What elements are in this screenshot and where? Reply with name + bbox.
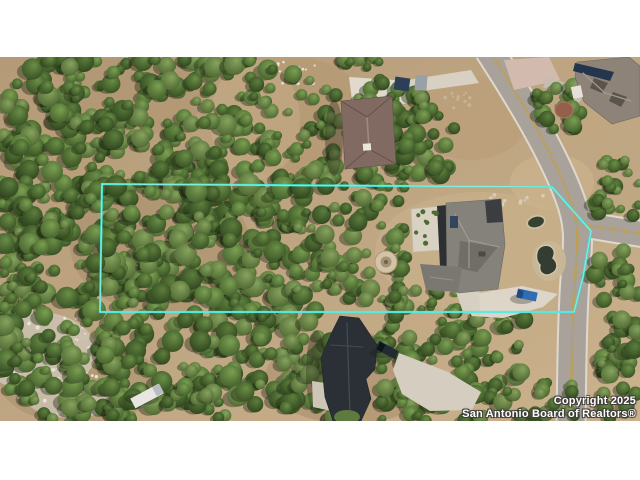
- house-main: [411, 199, 505, 293]
- aerial-photo-svg: [0, 57, 640, 421]
- aerial-photo: Copyright 2025 San Antonio Board of Real…: [0, 57, 640, 421]
- listing-photo-page: Copyright 2025 San Antonio Board of Real…: [0, 0, 640, 480]
- watermark: Copyright 2025 San Antonio Board of Real…: [462, 395, 636, 420]
- house-top: [325, 96, 396, 176]
- watermark-board-of-realtors: San Antonio Board of Realtors®: [462, 408, 636, 421]
- forest-region: [0, 177, 106, 325]
- house-bottom: [306, 316, 377, 421]
- watermark-copyright: Copyright 2025: [462, 395, 636, 408]
